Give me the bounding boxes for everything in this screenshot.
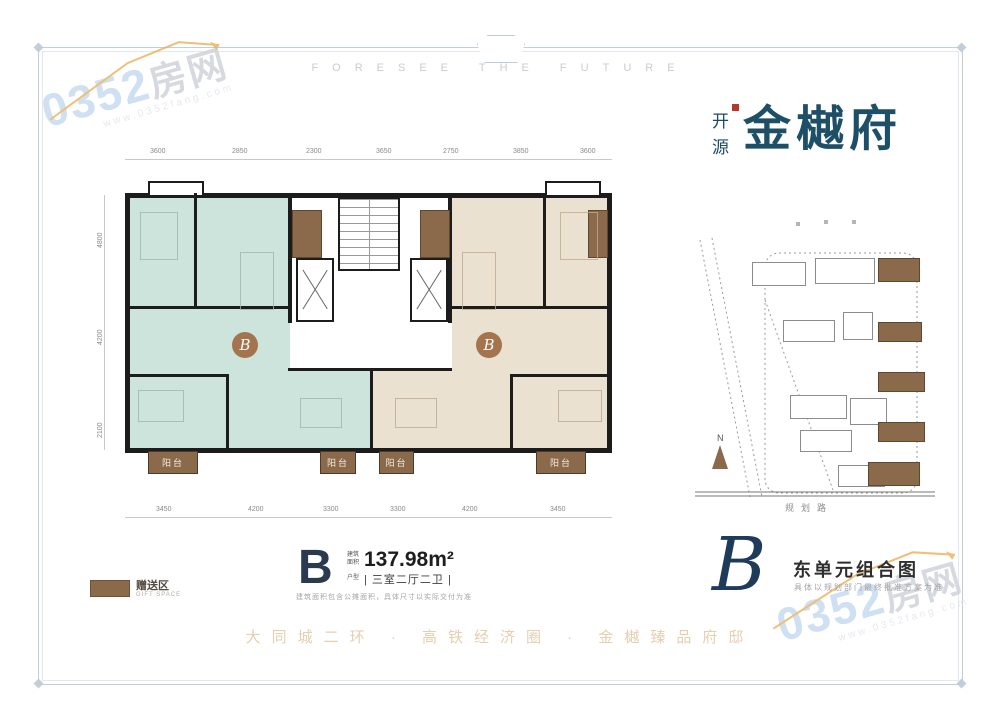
- furniture: [240, 252, 274, 310]
- furniture: [138, 390, 184, 422]
- legend-label: 赠送区: [136, 577, 169, 593]
- building-highlight: [878, 258, 920, 282]
- top-center-emblem: [477, 35, 525, 63]
- map-glyph: [796, 222, 800, 226]
- dimension-label: 2300: [306, 148, 322, 155]
- building: [752, 262, 806, 286]
- furniture: [140, 212, 178, 260]
- watermark-url: www.0352fang.com: [49, 82, 235, 145]
- dimension-label: 3850: [513, 148, 529, 155]
- brand-logo: 开 源 金樾府: [712, 96, 902, 163]
- dimension-label: 3600: [150, 148, 166, 155]
- corner-ornament: [957, 43, 967, 53]
- stair-divider: [369, 199, 370, 269]
- map-glyph: [824, 220, 828, 224]
- building-highlight: [878, 422, 925, 442]
- unit-b-badge: B: [476, 332, 502, 358]
- area-value: 137.98m²: [364, 548, 454, 572]
- furniture: [300, 398, 342, 428]
- gift-area: [420, 210, 450, 258]
- watermark-top-left: 0352房网 www.0352fang.com: [35, 33, 235, 145]
- compass-icon: [712, 445, 728, 469]
- balcony: 阳台: [379, 451, 414, 474]
- brand-prefix-char: 开: [712, 110, 729, 136]
- wall: [543, 193, 546, 308]
- furniture: [558, 390, 602, 422]
- balcony-label: 阳台: [385, 456, 407, 469]
- legend-gift-swatch: [90, 580, 130, 597]
- building: [815, 258, 875, 284]
- wall: [370, 370, 373, 450]
- section-subtitle: 具体以规划部门最终批准方案为准: [794, 582, 944, 593]
- wall: [510, 374, 513, 452]
- section-letter: B: [712, 528, 766, 602]
- header-tagline-en: FORESEE THE FUTURE: [0, 62, 1000, 74]
- dimension-label: 3650: [376, 148, 392, 155]
- wall: [128, 374, 228, 377]
- unit-b-badge: B: [232, 332, 258, 358]
- balcony: 阳台: [148, 451, 198, 474]
- corner-ornament: [34, 43, 44, 53]
- balcony-label: 阳台: [162, 456, 184, 469]
- stairwell: [338, 197, 400, 271]
- corner-ornament: [34, 679, 44, 689]
- watermark-suffix: 房网: [144, 44, 232, 106]
- layout-value: | 三室二厅二卫 |: [364, 571, 452, 587]
- unit-letter: B: [298, 544, 333, 592]
- dimension-label: 3450: [550, 506, 566, 513]
- building: [850, 398, 887, 425]
- dimension-line: [104, 195, 105, 450]
- brand-prefix-char: 源: [712, 136, 729, 162]
- map-glyph: [852, 220, 856, 224]
- road-label: 规划路: [785, 501, 833, 514]
- dimension-label: 4200: [462, 506, 478, 513]
- building: [843, 312, 873, 340]
- wall: [194, 193, 197, 308]
- section-title: 东单元组合图: [793, 556, 919, 582]
- corner-ornament: [957, 679, 967, 689]
- dimension-label: 3300: [323, 506, 339, 513]
- balcony-label: 阳台: [327, 456, 349, 469]
- elevator: [296, 258, 334, 322]
- building: [800, 430, 852, 452]
- dimension-label: 2100: [97, 422, 104, 438]
- building-highlight: [878, 322, 922, 342]
- building-highlight: [868, 462, 920, 486]
- dimension-label: 2750: [443, 148, 459, 155]
- bottom-tagline: 大同城二环 · 高铁经济圈 · 金樾臻品府邸: [0, 626, 1000, 647]
- brand-prefix: 开 源: [712, 110, 729, 161]
- balcony: 阳台: [320, 451, 356, 474]
- flyer-page: { "header": { "tagline_en": "FORESEE THE…: [0, 0, 1000, 720]
- dimension-line: [125, 159, 612, 160]
- wall: [226, 374, 229, 452]
- compass-n-label: N: [717, 433, 724, 443]
- unit-note: 建筑面积包含公摊面积，具体尺寸以实际交付为准: [296, 592, 472, 602]
- layout-label: 户型: [347, 572, 361, 581]
- dimension-label: 3450: [156, 506, 172, 513]
- balcony-label: 阳台: [550, 456, 572, 469]
- elevator: [410, 258, 448, 322]
- building: [783, 320, 835, 342]
- wall: [512, 374, 608, 377]
- area-label: 建筑面积: [347, 552, 361, 568]
- furniture: [395, 398, 437, 428]
- unit-b-badge-label: B: [239, 336, 250, 354]
- furniture: [560, 212, 598, 260]
- building: [790, 395, 847, 419]
- brand-seal-icon: [732, 104, 739, 111]
- dimension-label: 4200: [248, 506, 264, 513]
- legend-caption: GIFT SPACE: [136, 592, 181, 598]
- brand-name: 金樾府: [743, 96, 902, 163]
- dimension-label: 4800: [97, 232, 104, 248]
- unit-b-badge-label: B: [483, 336, 494, 354]
- balcony: 阳台: [536, 451, 586, 474]
- gift-area: [292, 210, 322, 258]
- bay-window: [545, 181, 601, 197]
- furniture: [462, 252, 496, 310]
- dimension-label: 4200: [97, 329, 104, 345]
- dimension-label: 3600: [580, 148, 596, 155]
- dimension-line: [125, 517, 612, 518]
- site-plan: N 规划路: [695, 215, 935, 520]
- dimension-label: 2850: [232, 148, 248, 155]
- dimension-label: 3300: [390, 506, 406, 513]
- wall: [125, 193, 130, 453]
- building-highlight: [878, 372, 925, 392]
